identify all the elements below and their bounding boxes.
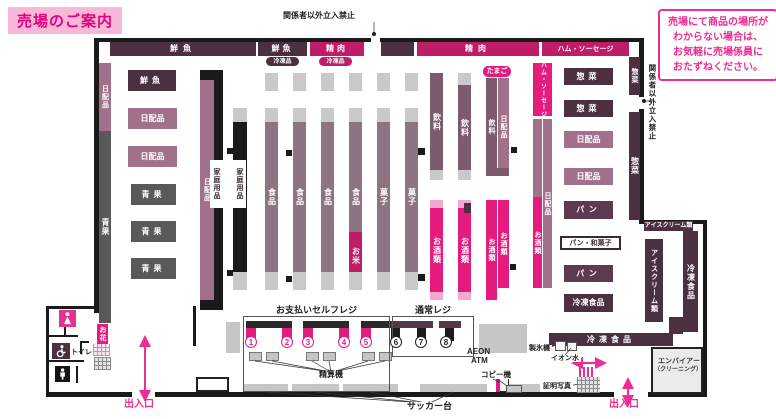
- box-produce-2: 青果: [131, 221, 176, 242]
- box-bread-wagashi: パン・和菓子: [560, 236, 621, 250]
- label-icecream-corner: アイスクリーム類: [644, 221, 693, 231]
- page-title: 売場のご案内: [8, 7, 122, 34]
- no-entry-right: 関係者以外立入禁止: [648, 64, 656, 141]
- shelf-stub: [293, 73, 306, 91]
- badge-eggs: たまご: [483, 66, 511, 77]
- box-deli-2: 惣菜: [564, 100, 613, 117]
- zone-alcohol-1: お酒類: [533, 197, 542, 288]
- cleaning-shop-sub: （クリーニング）: [654, 367, 702, 373]
- notice-line: おたずねください。: [661, 60, 775, 75]
- box-fresh-fish: 鮮魚: [128, 70, 176, 91]
- aisle-cap: [233, 272, 247, 290]
- toilet-label: トイレ: [71, 349, 92, 356]
- aisle-cap: [293, 272, 306, 290]
- aisle-cap: [349, 272, 362, 290]
- aisle-drinks-2: 飲料: [458, 85, 471, 170]
- box-daily-3: 日配品: [564, 131, 613, 148]
- atm-label-2: ATM: [471, 357, 488, 365]
- marker: [286, 276, 292, 282]
- register-number-5: 5: [360, 336, 372, 348]
- register-number-7: 7: [415, 336, 427, 348]
- strip-deli-2: 惣菜: [629, 112, 640, 220]
- aisle-daily-2: 日配品: [498, 78, 509, 176]
- aisle-part: [533, 119, 542, 197]
- photo-booth-top: [579, 367, 593, 377]
- dept-fresh-fish-bar: 鮮魚: [110, 42, 256, 56]
- marker: [418, 274, 425, 281]
- marker: [510, 264, 516, 270]
- aisle-cap: [377, 108, 390, 122]
- aisle-food-1: 食品: [265, 122, 278, 272]
- aisle-snacks-1: 菓子: [377, 122, 390, 272]
- aisle-daily-3: 日配品: [543, 119, 552, 288]
- aisle-cap: [265, 108, 278, 122]
- service-box: [196, 377, 229, 392]
- register-number-8: 8: [440, 336, 452, 348]
- aisle-drinks-3: 飲料: [486, 78, 497, 176]
- marker: [227, 270, 233, 276]
- badge-frozen-2: 冷凍品: [319, 57, 352, 66]
- aisle-food-3: 食品: [321, 122, 334, 272]
- aisle-cap: [349, 108, 362, 122]
- register-number-4: 4: [338, 336, 350, 348]
- register-number-2: 2: [281, 336, 293, 348]
- aisle-cap: [233, 108, 247, 122]
- exit-label-left: 出入口: [124, 400, 154, 411]
- photo-booth: [577, 377, 600, 393]
- zone-flowers: お花: [97, 324, 108, 344]
- aisle-drinks-1: 飲料: [430, 73, 443, 170]
- floor-map: 売場のご案内 売場にて商品の場所が わからない場合は、 お気軽に売場係員に おた…: [0, 0, 776, 419]
- zone-ham-sausage-v: ハム・ソーセージ: [533, 63, 552, 116]
- male-toilet-icon: [55, 366, 70, 382]
- aisle-cap: [200, 300, 223, 310]
- dept-meat-frozen-bar: 精肉: [310, 42, 364, 56]
- dept-ham-sausage-bar: ハム・ソーセージ: [542, 42, 629, 56]
- box-daily-2: 日配品: [128, 146, 177, 167]
- wall: [46, 306, 49, 395]
- copier-label: コピー機: [479, 371, 513, 379]
- marker: [418, 148, 425, 155]
- self-checkout-label: お支払いセルフレジ: [274, 306, 359, 315]
- aisle-cap: [458, 170, 471, 180]
- box-produce-3: 青果: [131, 258, 176, 279]
- ion-water-label: イオン水: [549, 355, 581, 362]
- box-bread-2: パン: [564, 265, 613, 282]
- register-number-1: 1: [245, 336, 257, 348]
- ion-water-machine: [567, 342, 577, 351]
- aisle-cap: [405, 272, 418, 290]
- marker: [286, 150, 292, 156]
- notice-line: お気軽に売場係員に: [661, 45, 775, 60]
- wall: [155, 392, 614, 397]
- marker: [511, 147, 517, 153]
- strip-daily-left: 日配品: [99, 63, 111, 131]
- atm-stripe: [496, 378, 500, 392]
- bagging-table-label: サッカー台: [405, 402, 454, 411]
- aisle-cap: [293, 108, 306, 122]
- exit-label-right: 出入口: [609, 400, 639, 411]
- aisle-snacks-2: 菓子: [405, 122, 418, 272]
- notice-line: わからない場合は、: [661, 30, 775, 45]
- strip-deli-1: 惣菜: [629, 57, 640, 95]
- strip-frozen-right: 冷凍食品: [683, 231, 698, 332]
- box-frozen-food: 冷凍食品: [564, 294, 613, 312]
- box-bread-1: パン: [564, 201, 613, 219]
- shelf-stub: [349, 73, 362, 91]
- box-produce-1: 青果: [131, 184, 176, 205]
- box-deli-1: 惣菜: [564, 68, 613, 85]
- shelf-stub: [405, 73, 418, 91]
- cleaning-shop-name: エンバイアー: [658, 358, 700, 365]
- wall: [76, 366, 78, 383]
- dept-meat-bar: 精肉: [417, 42, 539, 56]
- aisle-cap: [458, 73, 471, 85]
- zone-alcohol-3: お酒類: [458, 208, 471, 292]
- aisle-cap: [321, 272, 334, 290]
- regular-register-label: 通常レジ: [413, 306, 453, 315]
- aisle-cap: [265, 272, 278, 290]
- aisle-food-2: 食品: [293, 122, 306, 272]
- bagging-table: [420, 384, 487, 392]
- cart-rack-1: [93, 344, 110, 356]
- badge-frozen-1: 冷凍品: [266, 57, 299, 66]
- self-checkout-bracket: [243, 316, 390, 392]
- aisle-cap: [430, 170, 443, 180]
- shelf-stub: [265, 73, 278, 91]
- payment-machine-label: 精算機: [317, 371, 345, 379]
- dept-fresh-fish-frozen-bar: 鮮魚: [258, 42, 307, 56]
- wall: [46, 335, 78, 337]
- label-household-1: 家庭用品: [210, 160, 223, 208]
- aisle-cap: [458, 292, 471, 300]
- gray-box-small: [226, 322, 240, 353]
- ice-machine-label: 製氷機: [527, 345, 552, 352]
- strip-produce-left: 青果: [99, 131, 111, 323]
- aisle-cap: [405, 108, 418, 122]
- aisle-cap: [377, 272, 390, 290]
- notice-line: 売場にて商品の場所が: [661, 15, 775, 30]
- box-daily-4: 日配品: [564, 168, 613, 185]
- copier-machine: [506, 385, 522, 393]
- box-daily-1: 日配品: [128, 108, 177, 129]
- photo-booth-label: 証明写真: [541, 383, 573, 390]
- label-household-2: 家庭用品: [233, 160, 246, 208]
- register-number-3: 3: [302, 336, 314, 348]
- wall: [193, 306, 196, 346]
- regular-register-bracket: [392, 316, 474, 357]
- shelf-stub: [377, 73, 390, 91]
- marker: [464, 203, 471, 213]
- wall: [46, 392, 132, 397]
- aisle-cap: [321, 108, 334, 122]
- dept-bar-unlabeled: [381, 42, 414, 56]
- strip-icecream: アイスクリーム類: [645, 239, 663, 322]
- ice-machine: [555, 341, 566, 351]
- connector: [669, 317, 683, 334]
- shelf-stub: [321, 73, 334, 91]
- no-entry-top: 関係者以外立入禁止: [283, 12, 355, 20]
- aisle-foot: [486, 168, 509, 176]
- register-number-6: 6: [390, 336, 402, 348]
- aisle-cap: [430, 200, 443, 208]
- notice-box: 売場にて商品の場所が わからない場合は、 お気軽に売場係員に おたずねください。: [658, 9, 776, 81]
- female-toilet-icon: [59, 310, 76, 327]
- aisle-cap: [430, 292, 443, 300]
- wall: [46, 360, 84, 362]
- wheelchair-icon: [52, 343, 70, 359]
- zone-alcohol-5: お酒類: [498, 200, 509, 288]
- zone-alcohol-2: お酒類: [430, 208, 443, 292]
- wall: [703, 220, 707, 397]
- wall: [46, 306, 97, 309]
- zone-alcohol-4: お酒類: [486, 200, 497, 300]
- cart-rack-2: [94, 357, 111, 370]
- aisle-cap: [200, 70, 223, 80]
- marker: [227, 148, 233, 154]
